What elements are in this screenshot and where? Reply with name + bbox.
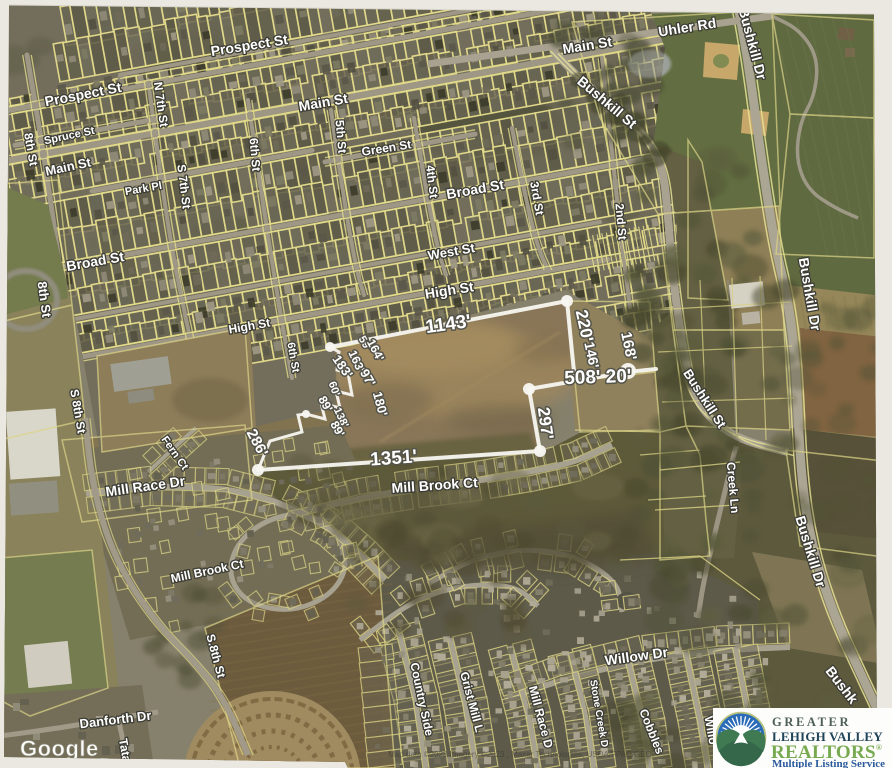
svg-text:6th St: 6th St: [247, 137, 264, 171]
svg-text:5th St: 5th St: [333, 119, 350, 153]
svg-text:Google: Google: [20, 736, 99, 761]
svg-text:1351': 1351': [370, 446, 418, 470]
svg-text:GREATER: GREATER: [772, 715, 851, 729]
svg-text:Multiple Listing Service: Multiple Listing Service: [772, 758, 885, 768]
svg-text:508' 20': 508' 20': [564, 366, 632, 389]
svg-text:Map data ©2023 Imagery ©2023: Map data ©2023 Imagery ©2023 , Maxar Tec…: [388, 750, 652, 759]
